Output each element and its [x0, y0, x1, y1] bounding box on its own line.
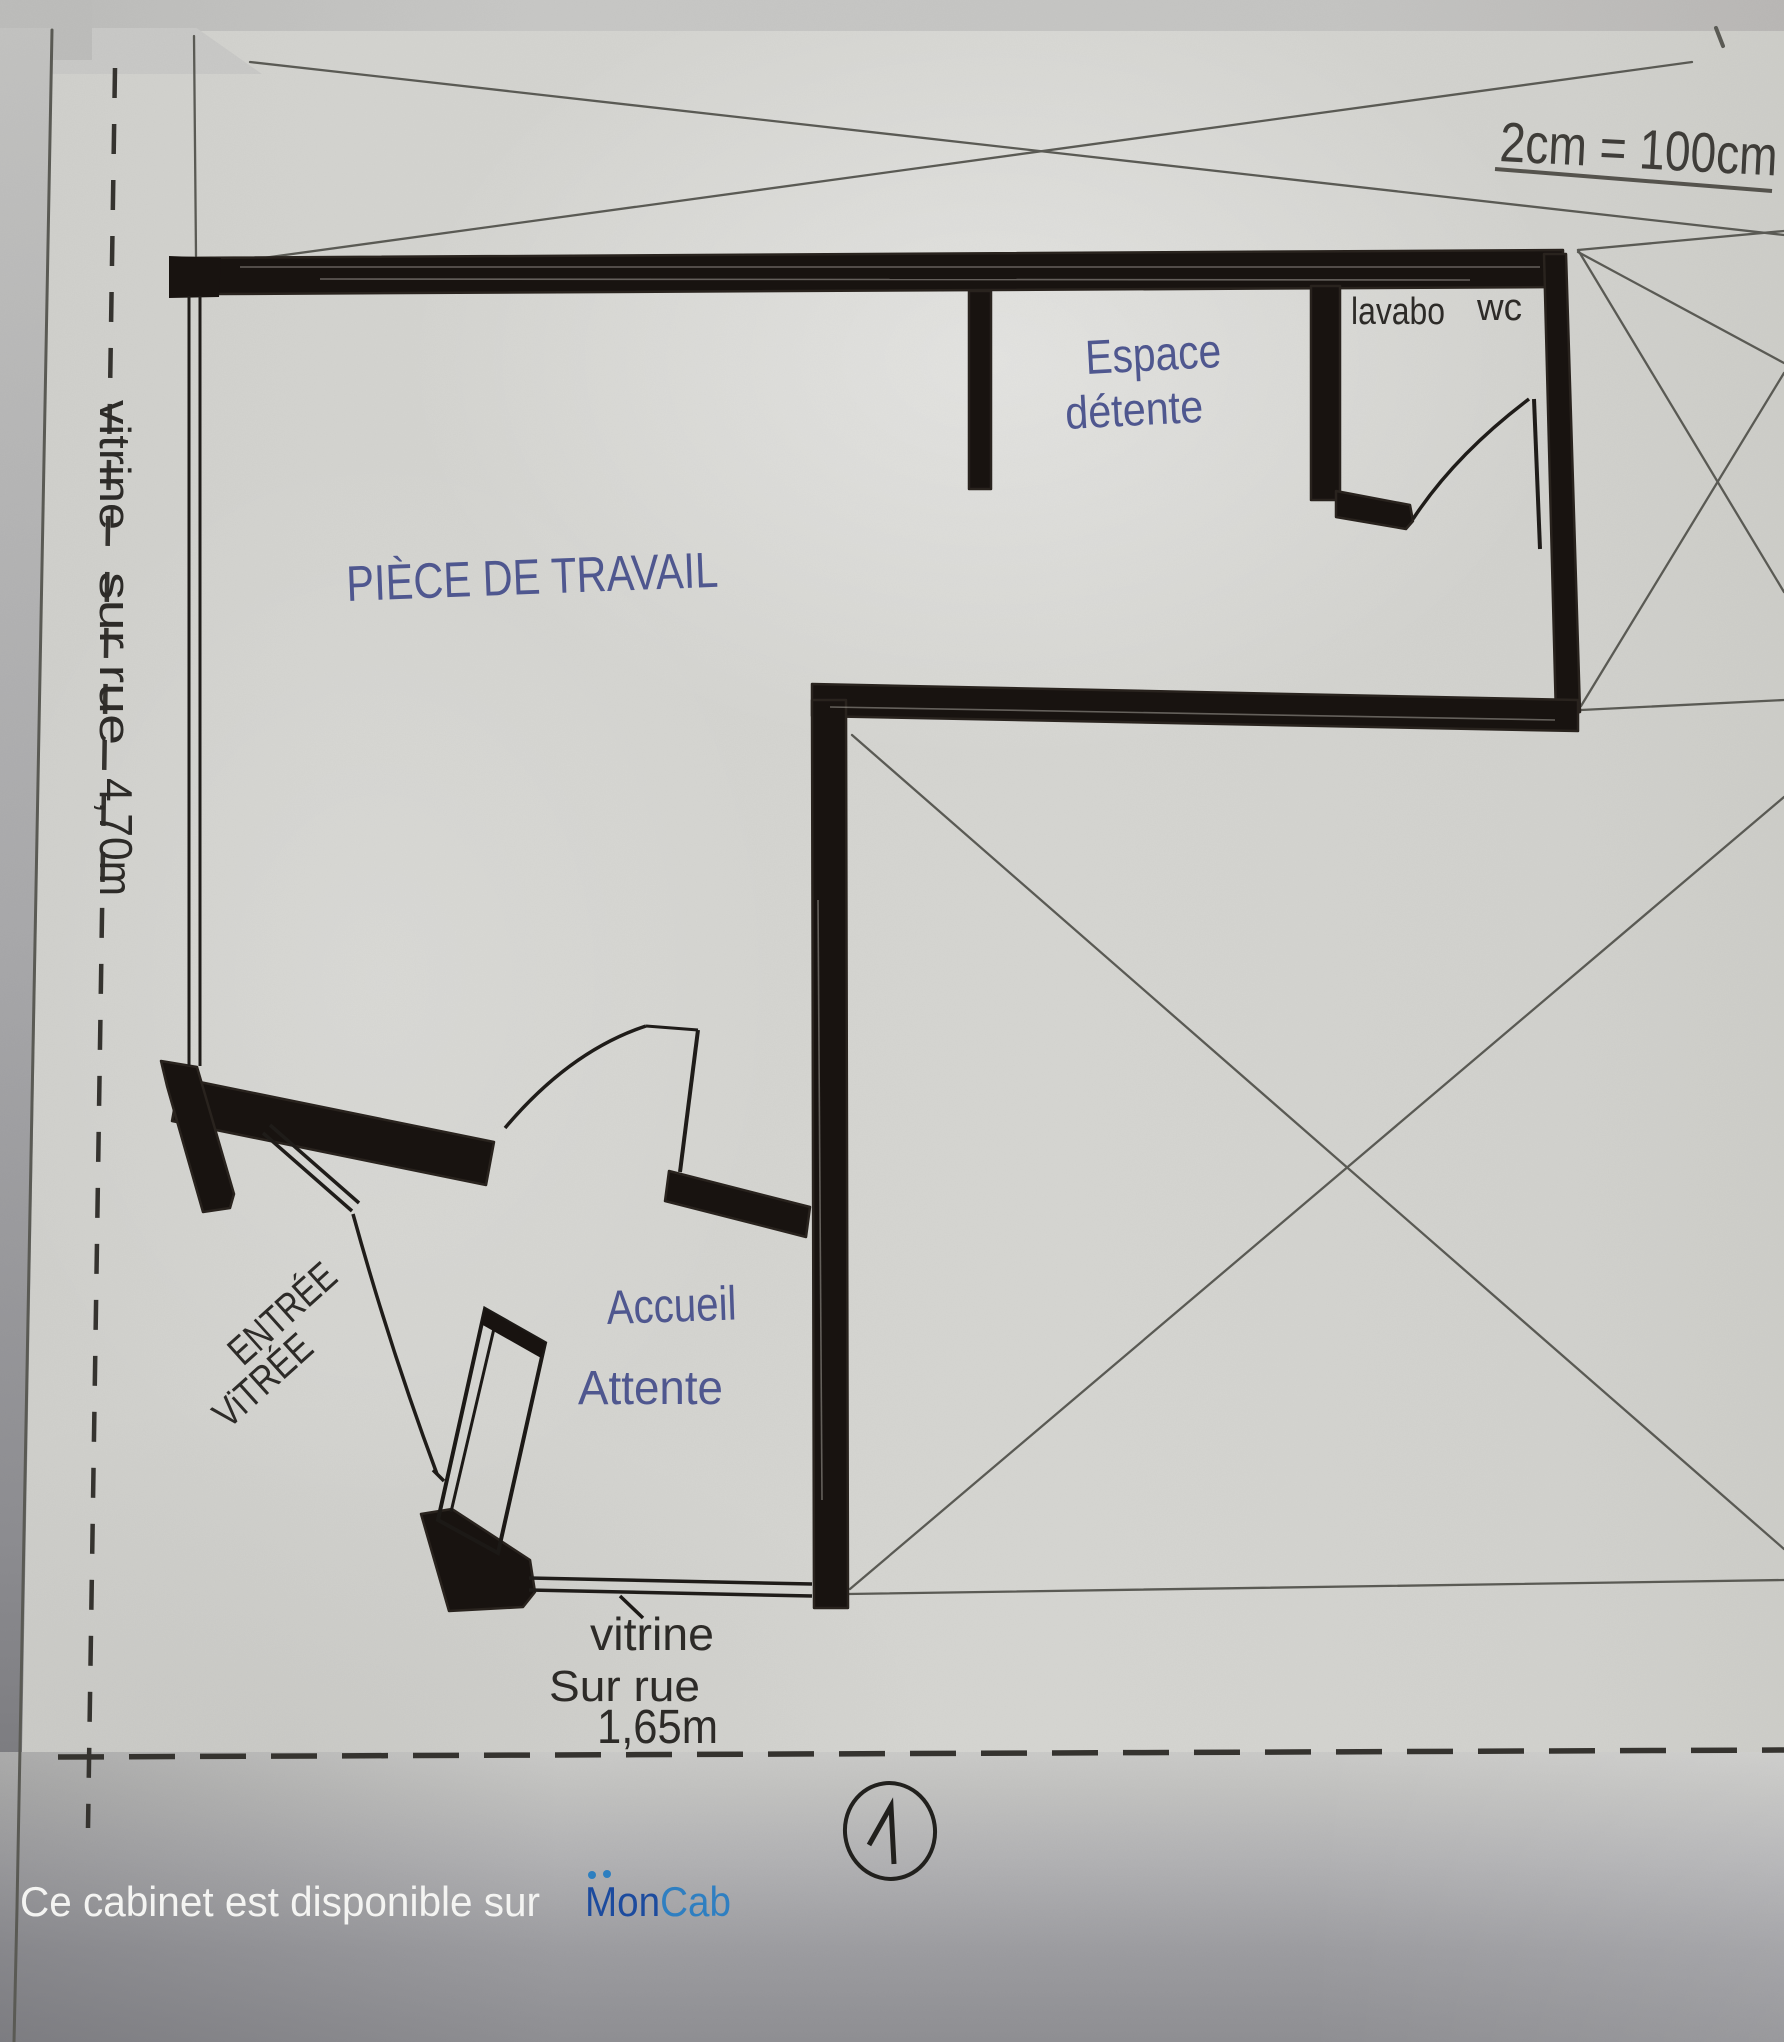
svg-text:lavabo: lavabo [1351, 291, 1445, 333]
svg-text:wc: wc [1476, 287, 1522, 329]
svg-text:Attente: Attente [578, 1362, 723, 1415]
svg-text:vitrine: vitrine [90, 400, 139, 530]
svg-text:Ce cabinet est disponible sur: Ce cabinet est disponible sur [20, 1878, 540, 1925]
svg-text:MonCab: MonCab [585, 1878, 731, 1925]
svg-text:sur rue: sur rue [90, 572, 139, 745]
svg-text:4,70m: 4,70m [90, 778, 142, 896]
svg-text:Accueil: Accueil [606, 1277, 738, 1335]
svg-text:détente: détente [1064, 380, 1205, 439]
svg-text:1,65m: 1,65m [597, 1701, 718, 1754]
svg-text:Espace: Espace [1084, 325, 1223, 385]
svg-text:vitrine: vitrine [590, 1608, 714, 1660]
